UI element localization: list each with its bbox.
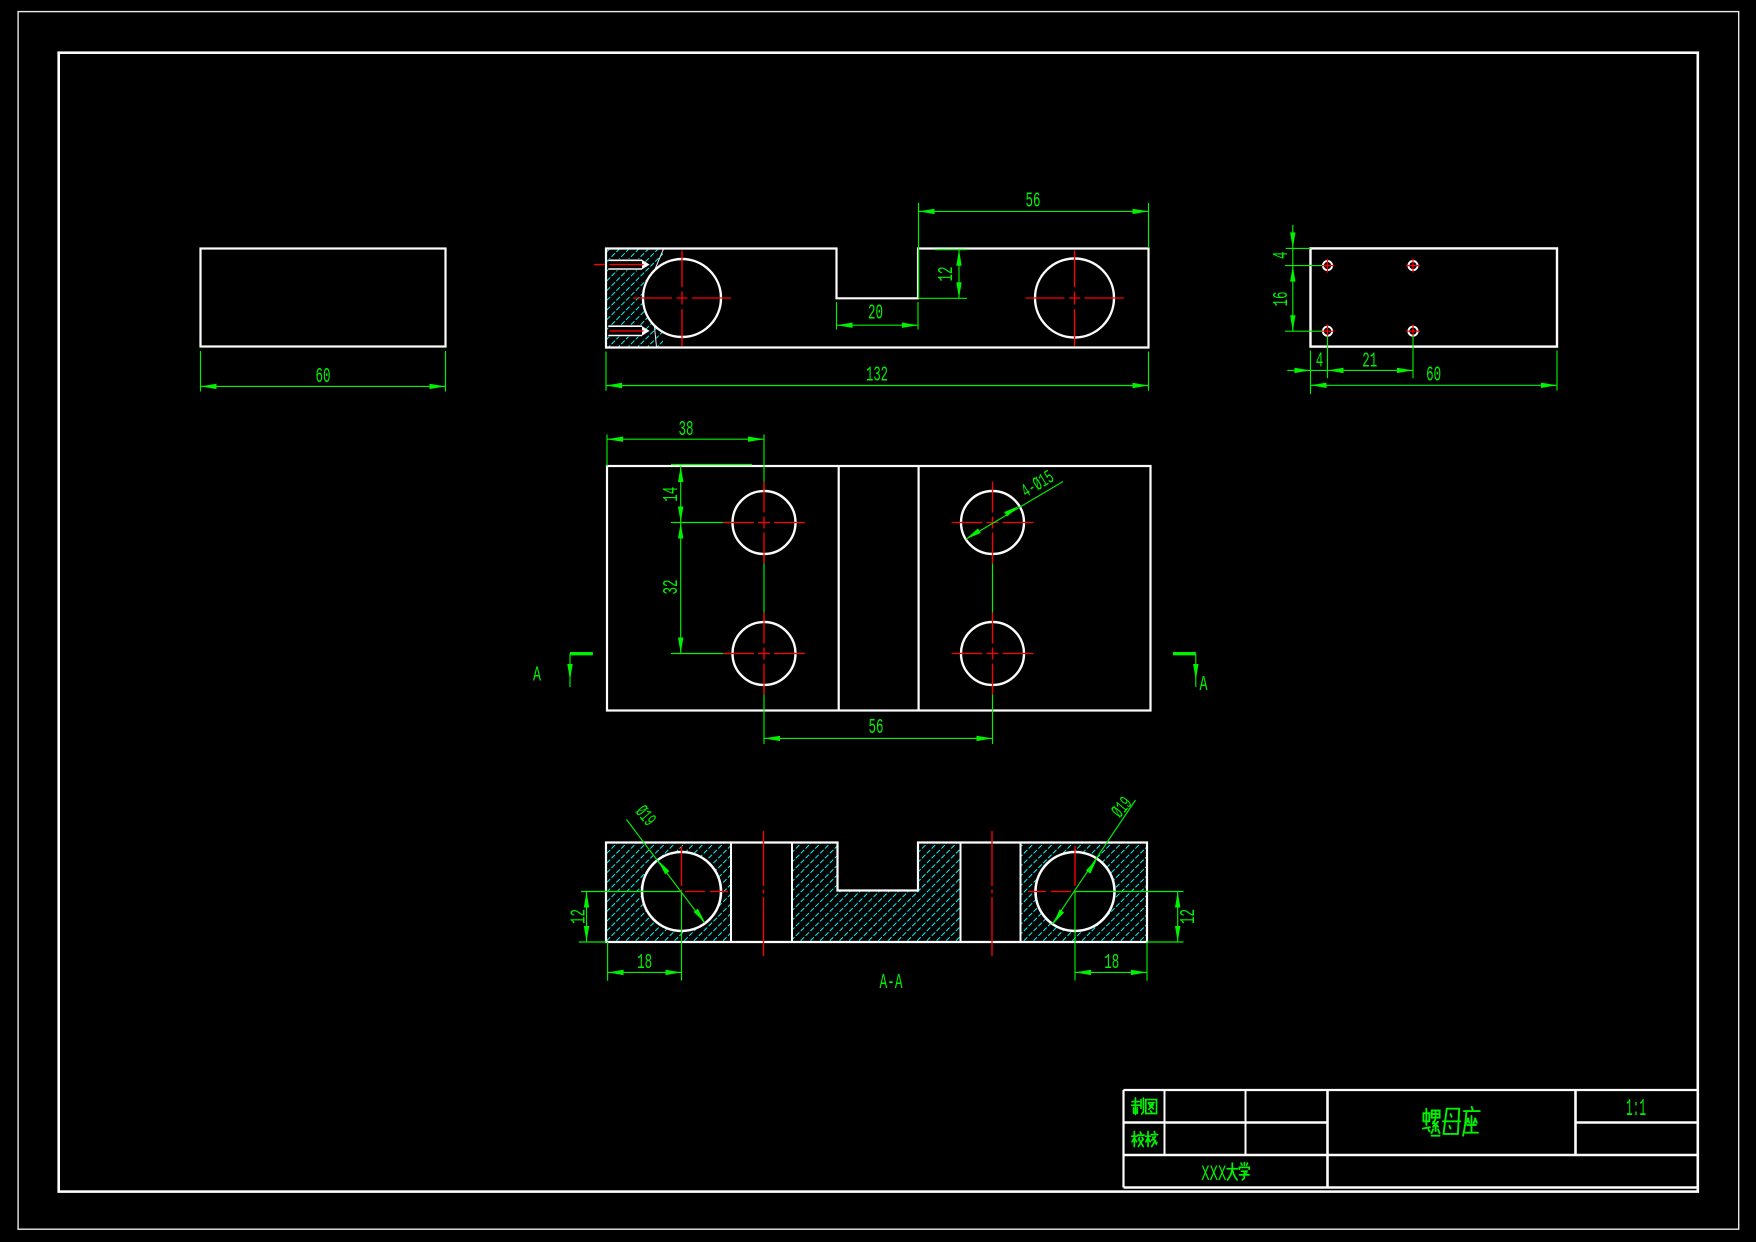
svg-text:4-Ø15: 4-Ø15 [1018,466,1058,502]
svg-text:16: 16 [1270,292,1294,307]
svg-text:Ø19: Ø19 [1108,793,1138,822]
svg-text:12: 12 [567,909,591,924]
svg-text:18: 18 [1104,951,1119,975]
svg-text:20: 20 [868,301,883,325]
svg-text:1:1: 1:1 [1626,1096,1646,1123]
svg-text:A-A: A-A [880,971,903,995]
svg-text:Ø19: Ø19 [630,801,660,830]
svg-text:56: 56 [1026,189,1041,213]
svg-text:132: 132 [866,363,888,387]
svg-text:12: 12 [935,267,959,282]
svg-text:A: A [533,663,541,687]
svg-text:32: 32 [660,580,684,595]
svg-text:A: A [1200,673,1208,697]
svg-text:18: 18 [637,951,652,975]
svg-text:60: 60 [1426,364,1441,388]
svg-text:4: 4 [1270,252,1294,260]
svg-text:21: 21 [1362,349,1377,373]
svg-text:XXX: XXX [1201,1162,1226,1187]
svg-text:60: 60 [316,365,331,389]
svg-text:4: 4 [1316,349,1324,373]
svg-text:12: 12 [1177,909,1201,924]
svg-text:38: 38 [679,418,694,442]
svg-text:14: 14 [660,487,684,502]
svg-text:56: 56 [869,716,884,740]
